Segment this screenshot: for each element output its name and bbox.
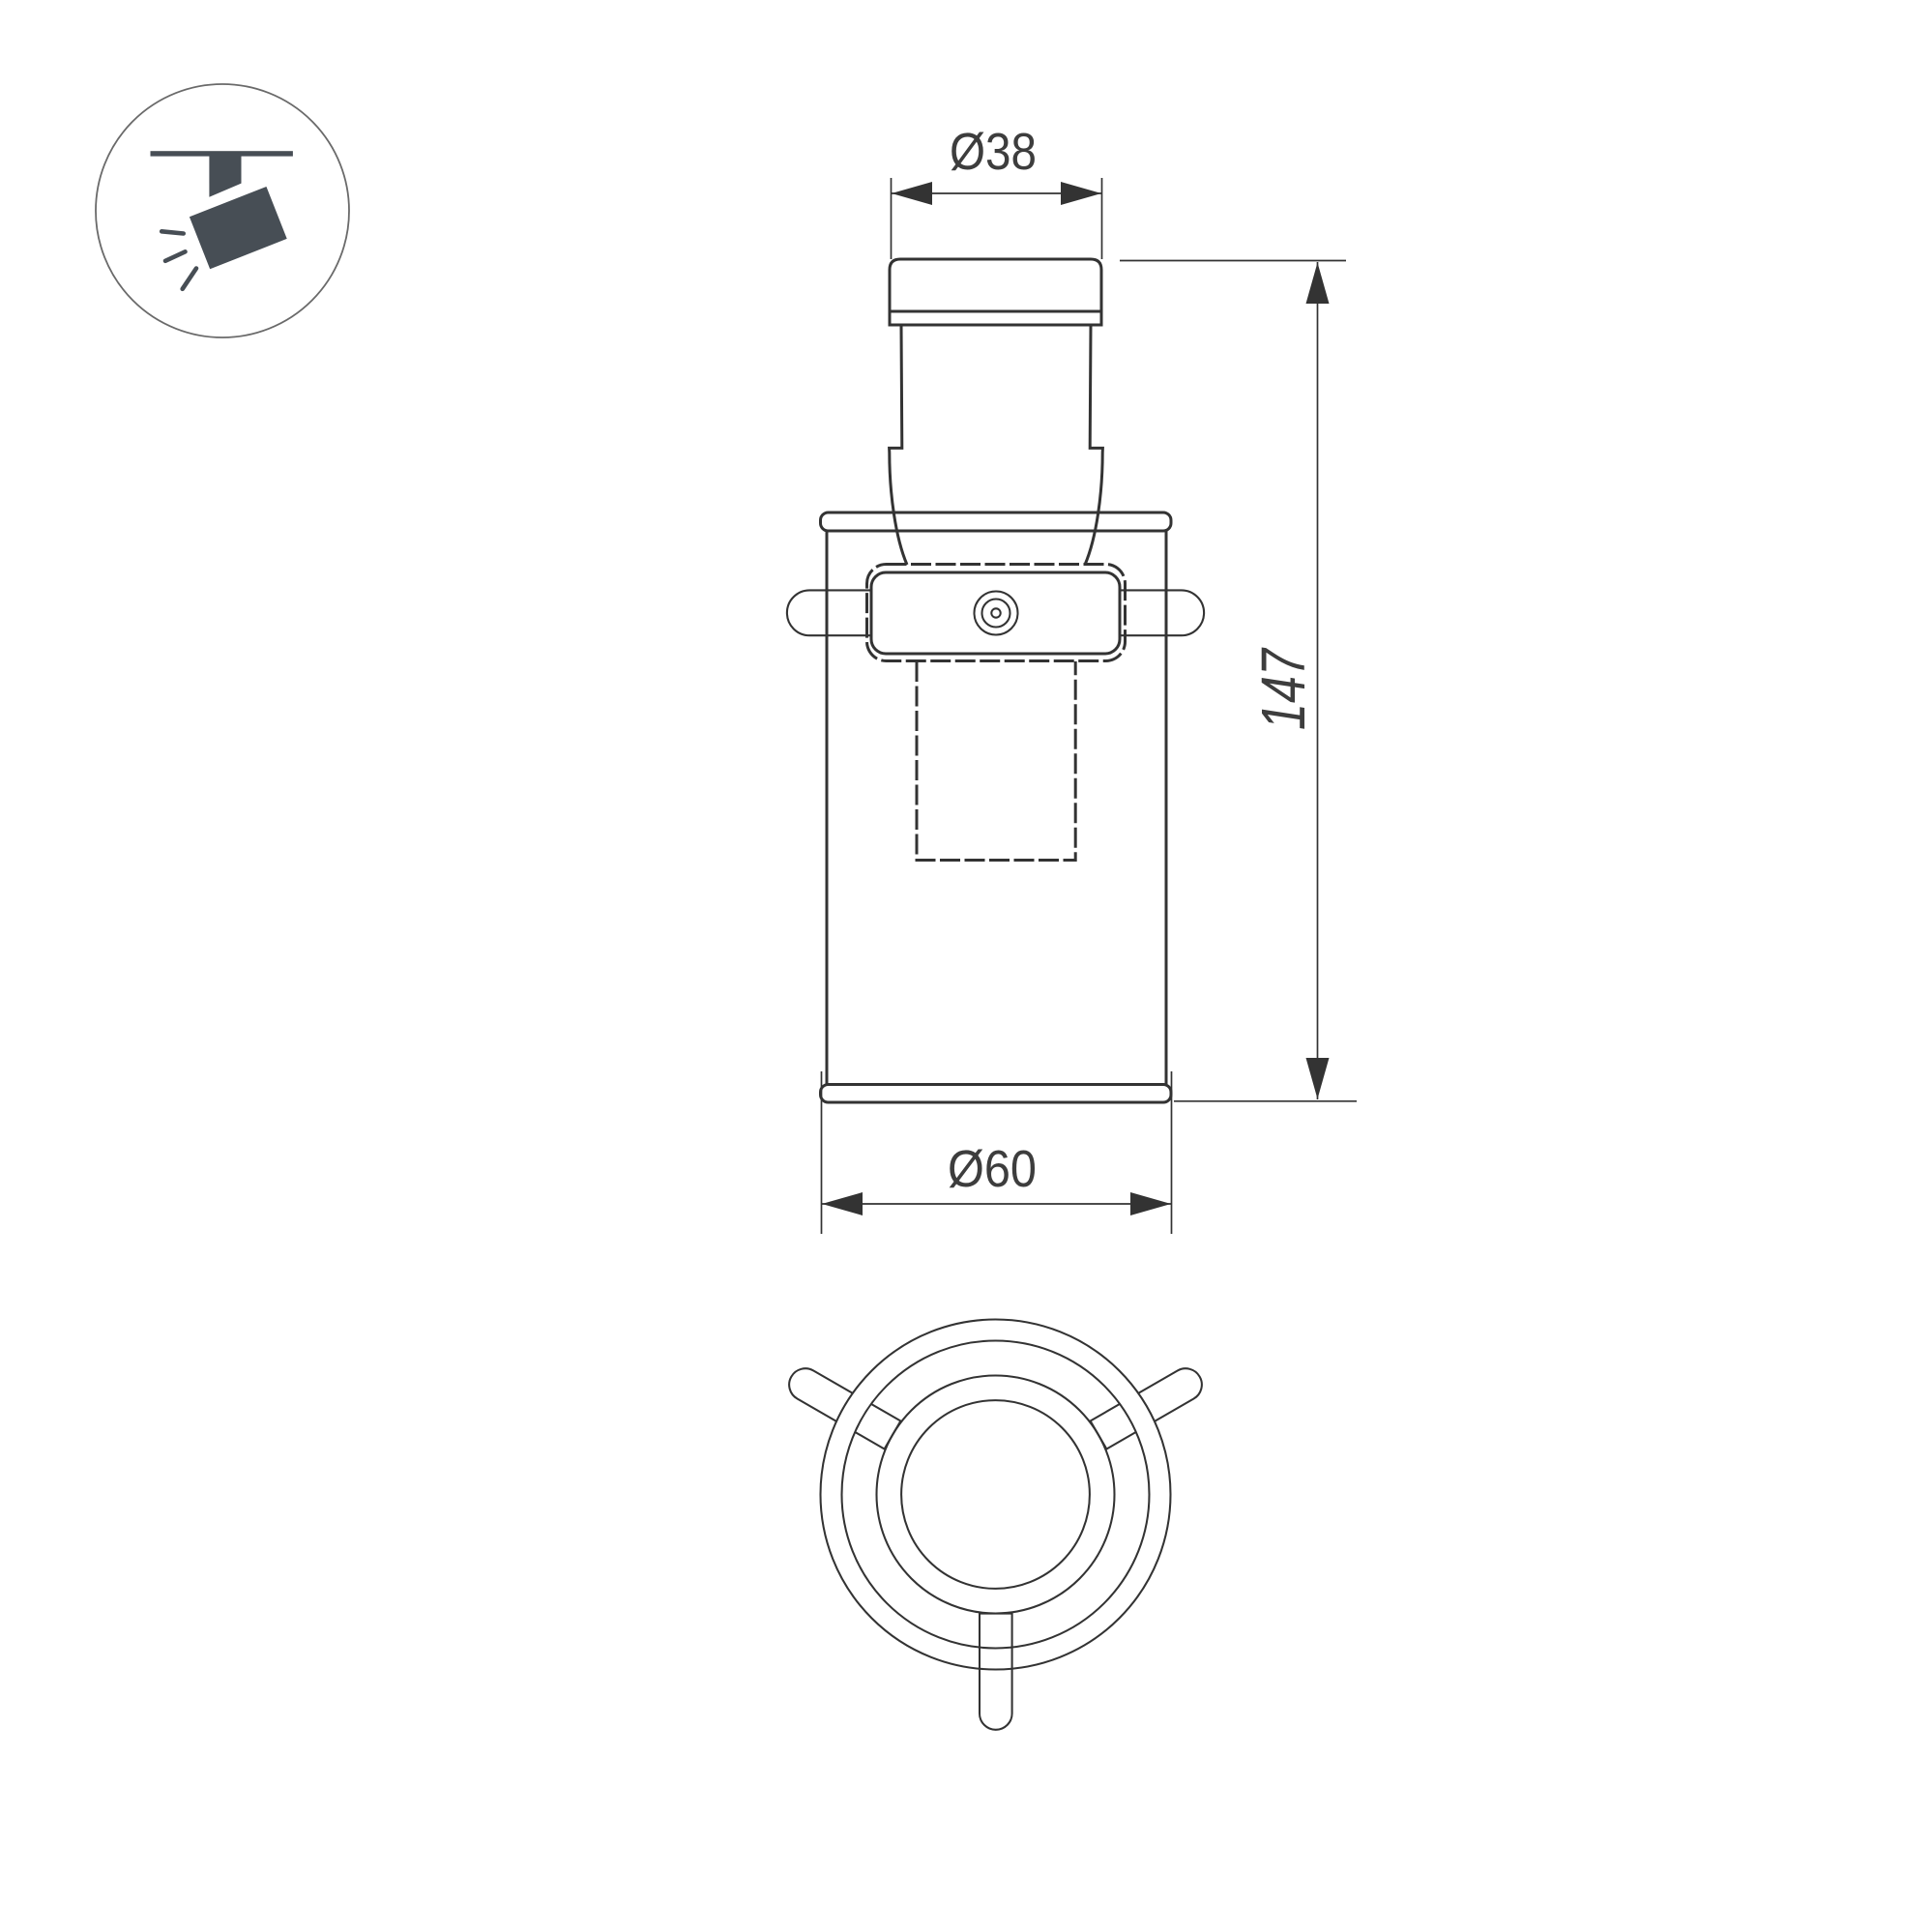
svg-text:Ø38: Ø38 [950,123,1037,181]
svg-text:147: 147 [1248,647,1318,730]
svg-text:Ø60: Ø60 [948,1140,1037,1198]
